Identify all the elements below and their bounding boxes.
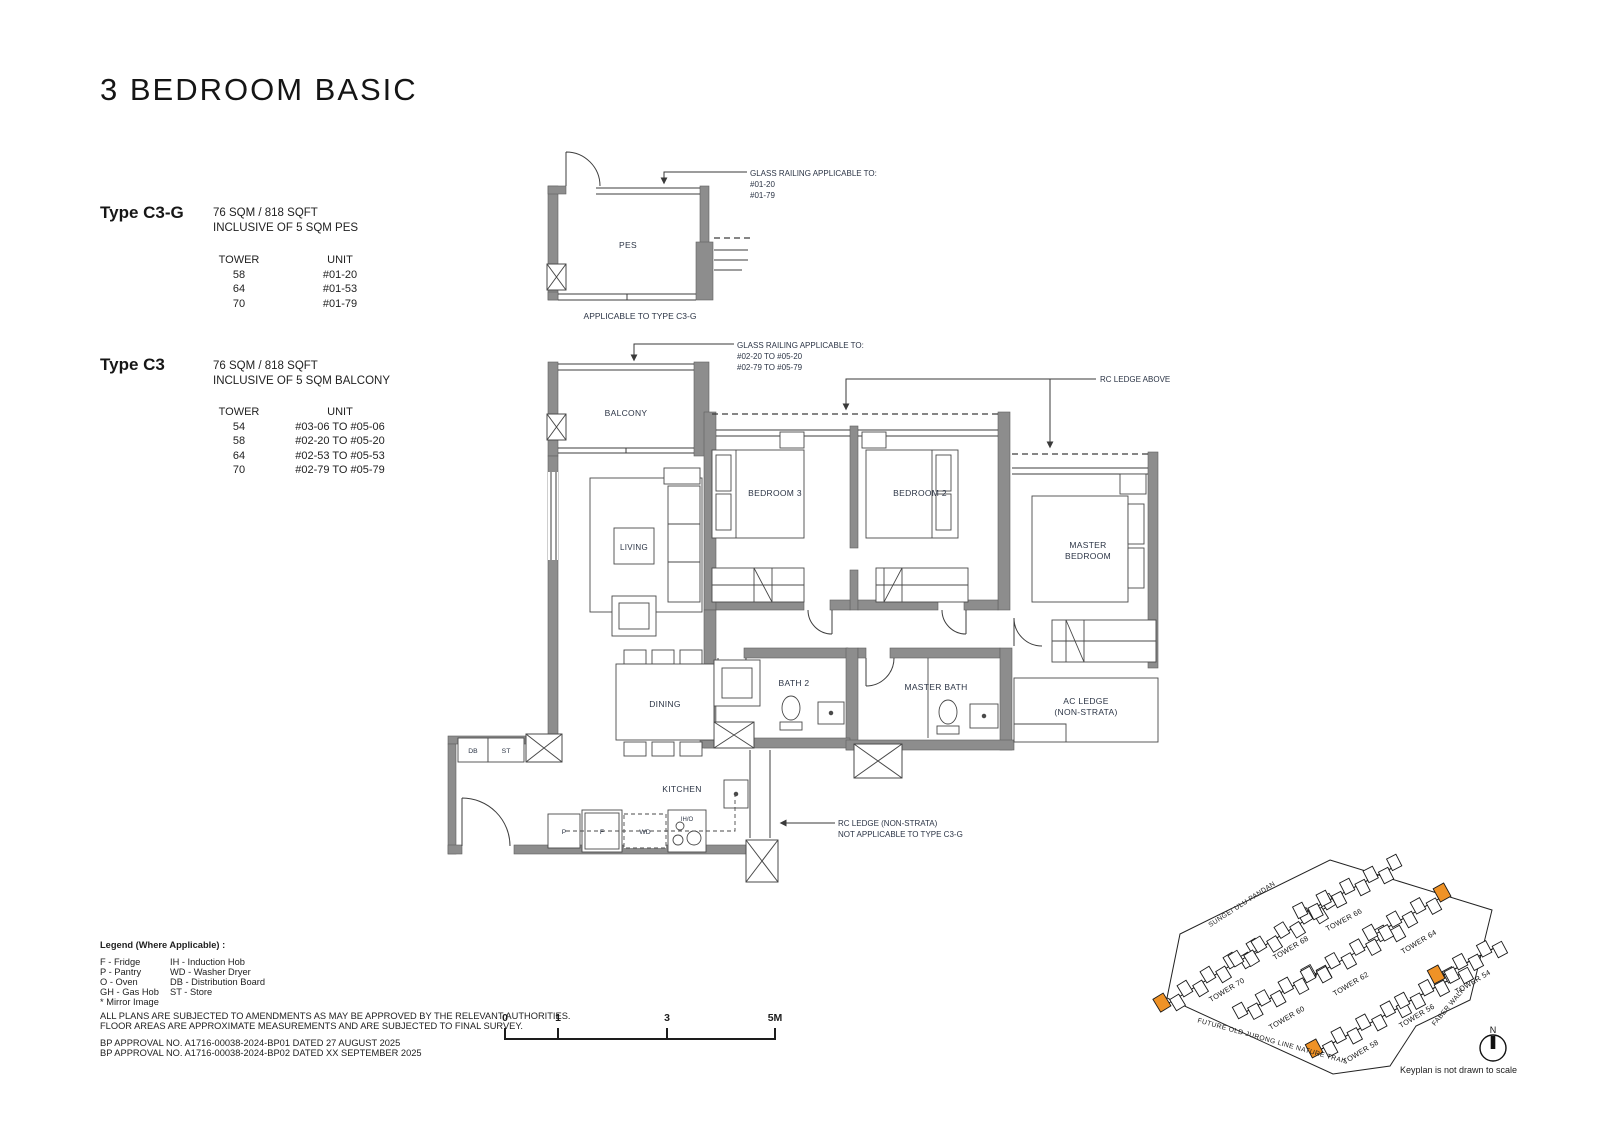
keyplan-unit xyxy=(1372,1014,1387,1030)
legend-col1: F - Fridge P - Pantry O - Oven GH - Gas … xyxy=(100,957,170,1007)
bedroom3-door xyxy=(808,610,832,634)
master-door xyxy=(1014,618,1042,646)
type-c3-area-line: 76 SQM / 818 SQFT xyxy=(213,359,453,374)
keyplan-unit xyxy=(1349,939,1365,955)
cell-tower: 54 xyxy=(213,420,265,435)
keyplan-unit xyxy=(1366,939,1382,955)
keyplan: TOWER 70TOWER 68TOWER 66TOWER 60TOWER 62… xyxy=(1140,850,1565,1085)
keyplan-unit xyxy=(1325,953,1341,969)
bed-master xyxy=(1032,474,1146,602)
room-label-acledge-1: AC LEDGE xyxy=(1063,696,1108,706)
keyplan-tower-label: TOWER 64 xyxy=(1399,928,1438,956)
ann-rc-ns-2: NOT APPLICABLE TO TYPE C3-G xyxy=(838,830,963,839)
bedroom2-door xyxy=(942,610,966,634)
label-iho: IH/O xyxy=(681,817,694,823)
legend-title: Legend (Where Applicable) : xyxy=(100,940,450,950)
keyplan-unit xyxy=(1177,980,1193,997)
table-header: TOWER UNIT xyxy=(213,405,415,420)
keyplan-unit xyxy=(1355,879,1370,895)
x-box xyxy=(714,722,754,748)
room-label-bath2: BATH 2 xyxy=(779,678,810,688)
cell-unit: #02-20 TO #05-20 xyxy=(265,434,415,449)
legend-item: WD - Washer Dryer xyxy=(170,967,265,977)
ann-pes-railing-1: GLASS RAILING APPLICABLE TO: xyxy=(750,169,877,178)
keyplan-unit xyxy=(1452,953,1467,969)
type-c3-block: Type C3 76 SQM / 818 SQFT INCLUSIVE OF 5… xyxy=(100,355,165,375)
scale-label-5m: 5M xyxy=(768,1012,783,1024)
x-box xyxy=(547,264,566,290)
room-label-masterbath: MASTER BATH xyxy=(904,682,967,692)
bath2-fixtures xyxy=(714,660,844,730)
wardrobe-bedroom3 xyxy=(712,568,804,602)
keyplan-note: Keyplan is not drawn to scale xyxy=(1400,1065,1517,1075)
cell-tower: 58 xyxy=(213,268,265,283)
cell-tower: 64 xyxy=(213,449,265,464)
keyplan-unit xyxy=(1340,878,1355,894)
keyplan-unit xyxy=(1216,966,1232,983)
floorplan-drawing: PES BALCONY LIVING BEDROOM 3 BEDROOM 2 M… xyxy=(430,140,1170,890)
ann-bal-railing-2: #02-20 TO #05-20 xyxy=(737,352,803,361)
keyplan-unit xyxy=(1378,867,1393,883)
legend-item: IH - Induction Hob xyxy=(170,957,265,967)
x-box xyxy=(526,734,562,762)
approval-line: BP APPROVAL NO. A1716-00038-2024-BP02 DA… xyxy=(100,1049,580,1059)
col-unit: UNIT xyxy=(265,253,415,268)
cell-tower: 70 xyxy=(213,463,265,478)
room-label-acledge-2: (NON-STRATA) xyxy=(1054,707,1117,717)
ann-rc-ledge-above: RC LEDGE ABOVE xyxy=(1100,375,1170,384)
cell-tower: 64 xyxy=(213,282,265,297)
table-row: 58 #02-20 TO #05-20 xyxy=(213,434,415,449)
room-label-living: LIVING xyxy=(620,543,648,552)
coffee-table xyxy=(612,596,656,636)
bed-bedroom3 xyxy=(712,432,804,538)
legend-item: * Mirror Image xyxy=(100,997,170,1007)
label-st: ST xyxy=(502,748,511,755)
road-label-top: SUNGEI ULU PANDAN xyxy=(1208,881,1277,929)
keyplan-unit xyxy=(1356,1014,1371,1030)
keyplan-unit xyxy=(1402,911,1417,927)
label-db: DB xyxy=(468,748,478,755)
cell-unit: #01-20 xyxy=(265,268,415,283)
ann-rc-ns-1: RC LEDGE (NON-STRATA) xyxy=(838,819,938,828)
cell-unit: #02-53 TO #05-53 xyxy=(265,449,415,464)
table-header: TOWER UNIT xyxy=(213,253,415,268)
kitchen-sink xyxy=(724,780,748,808)
legend-item: DB - Distribution Board xyxy=(170,977,265,987)
cell-unit: #01-79 xyxy=(265,297,415,312)
type-c3-inclusive: INCLUSIVE OF 5 SQM BALCONY xyxy=(213,374,453,389)
keyplan-unit xyxy=(1331,1027,1346,1043)
road-label-right: FABER WALK xyxy=(1431,987,1467,1028)
type-c3g-block: Type C3-G 76 SQM / 818 SQFT INCLUSIVE OF… xyxy=(100,203,184,223)
keyplan-unit xyxy=(1341,953,1357,969)
furniture xyxy=(458,432,1158,852)
room-label-kitchen: KITCHEN xyxy=(662,784,701,794)
table-row: 64 #01-53 xyxy=(213,282,415,297)
table-row: 70 #02-79 TO #05-79 xyxy=(213,463,415,478)
keyplan-unit xyxy=(1200,966,1216,983)
keyplan-towers: TOWER 70TOWER 68TOWER 66TOWER 60TOWER 62… xyxy=(1153,854,1508,1066)
keyplan-unit xyxy=(1387,854,1402,870)
pes-door xyxy=(566,152,600,186)
keyplan-unit xyxy=(1347,1028,1362,1044)
room-label-master-1: MASTER xyxy=(1069,540,1106,550)
scale-label-1: 1 xyxy=(555,1012,561,1024)
cell-unit: #03-06 TO #05-06 xyxy=(265,420,415,435)
room-label-balcony: BALCONY xyxy=(605,408,648,418)
masterbath-fixtures xyxy=(928,658,998,738)
north-arrow: N xyxy=(1480,1025,1506,1061)
keyplan-unit xyxy=(1170,994,1186,1011)
type-c3g-inclusive: INCLUSIVE OF 5 SQM PES xyxy=(213,221,433,236)
room-label-bedroom2: BEDROOM 2 xyxy=(893,488,947,498)
x-box xyxy=(547,414,566,440)
room-label-master-2: BEDROOM xyxy=(1065,551,1111,561)
keyplan-unit xyxy=(1380,1001,1395,1017)
ann-bal-railing-3: #02-79 TO #05-79 xyxy=(737,363,803,372)
col-tower: TOWER xyxy=(213,253,265,268)
entry-door xyxy=(462,798,510,846)
ann-bal-railing-1: GLASS RAILING APPLICABLE TO: xyxy=(737,341,864,350)
cell-unit: #01-53 xyxy=(265,282,415,297)
legend-item: GH - Gas Hob xyxy=(100,987,170,997)
keyplan-unit xyxy=(1410,898,1425,914)
legend-col2: IH - Induction Hob WD - Washer Dryer DB … xyxy=(170,957,265,1007)
table-row: 70 #01-79 xyxy=(213,297,415,312)
legend-item: P - Pantry xyxy=(100,967,170,977)
sofa xyxy=(668,486,700,602)
floorplan-page: 3 BEDROOM BASIC Type C3-G 76 SQM / 818 S… xyxy=(0,0,1600,1132)
type-c3g-area-line: 76 SQM / 818 SQFT xyxy=(213,206,433,221)
type-c3g-name: Type C3-G xyxy=(100,203,184,223)
masterbath-door xyxy=(866,658,894,686)
scale-line xyxy=(505,1038,775,1040)
col-unit: UNIT xyxy=(265,405,415,420)
keyplan-unit xyxy=(1362,924,1377,940)
col-tower: TOWER xyxy=(213,405,265,420)
room-label-pes: PES xyxy=(619,240,637,250)
label-f: F xyxy=(600,829,604,836)
keyplan-unit xyxy=(1363,866,1378,882)
bed-bedroom2 xyxy=(862,432,958,538)
keyplan-tower-label: TOWER 66 xyxy=(1324,906,1364,933)
page-title: 3 BEDROOM BASIC xyxy=(100,72,418,108)
type-c3g-area: 76 SQM / 818 SQFT INCLUSIVE OF 5 SQM PES xyxy=(213,206,433,236)
keyplan-tower-label: TOWER 60 xyxy=(1267,1004,1306,1032)
legend-item: O - Oven xyxy=(100,977,170,987)
table-row: 64 #02-53 TO #05-53 xyxy=(213,449,415,464)
keyplan-unit xyxy=(1418,979,1433,995)
label-p: P xyxy=(562,829,567,836)
living-window xyxy=(548,472,558,560)
room-label-bedroom3: BEDROOM 3 xyxy=(748,488,802,498)
type-c3-table: TOWER UNIT 54 #03-06 TO #05-06 58 #02-20… xyxy=(213,405,415,478)
ann-pes-railing-2: #01-20 xyxy=(750,180,775,189)
keyplan-tower-label: TOWER 62 xyxy=(1331,970,1370,998)
ann-applicable-c3g: APPLICABLE TO TYPE C3-G xyxy=(584,311,697,321)
table-row: 58 #01-20 xyxy=(213,268,415,283)
keyplan-unit xyxy=(1492,941,1507,957)
label-wd: WD xyxy=(639,829,650,836)
scale-label-3: 3 xyxy=(664,1012,670,1024)
ann-pes-railing-3: #01-79 xyxy=(750,191,775,200)
cell-tower: 58 xyxy=(213,434,265,449)
keyplan-roads: SUNGEI ULU PANDAN FUTURE OLD JURONG LINE… xyxy=(1197,881,1467,1066)
keyplan-unit xyxy=(1476,941,1491,957)
legend: Legend (Where Applicable) : F - Fridge P… xyxy=(100,940,450,1007)
type-c3-area: 76 SQM / 818 SQFT INCLUSIVE OF 5 SQM BAL… xyxy=(213,359,453,389)
table-row: 54 #03-06 TO #05-06 xyxy=(213,420,415,435)
room-label-dining: DINING xyxy=(649,699,681,709)
sofa-back xyxy=(664,468,700,484)
legend-item: ST - Store xyxy=(170,987,265,997)
scale-bar: 0 1 3 5M xyxy=(495,1012,795,1042)
north-label: N xyxy=(1490,1025,1497,1035)
cell-unit: #02-79 TO #05-79 xyxy=(265,463,415,478)
wardrobe-bedroom2 xyxy=(876,568,968,602)
wardrobe-master xyxy=(1052,620,1156,662)
x-box xyxy=(854,744,902,778)
x-box xyxy=(746,840,778,882)
keyplan-unit xyxy=(1274,922,1290,939)
type-c3g-table: TOWER UNIT 58 #01-20 64 #01-53 70 #01-79 xyxy=(213,253,415,311)
cell-tower: 70 xyxy=(213,297,265,312)
scale-label-0: 0 xyxy=(502,1012,508,1024)
keyplan-unit-highlighted xyxy=(1153,993,1171,1012)
legend-item: F - Fridge xyxy=(100,957,170,967)
type-c3-name: Type C3 xyxy=(100,355,165,375)
keyplan-unit xyxy=(1193,980,1209,997)
keyplan-unit xyxy=(1232,1002,1247,1018)
keyplan-unit xyxy=(1468,954,1483,970)
